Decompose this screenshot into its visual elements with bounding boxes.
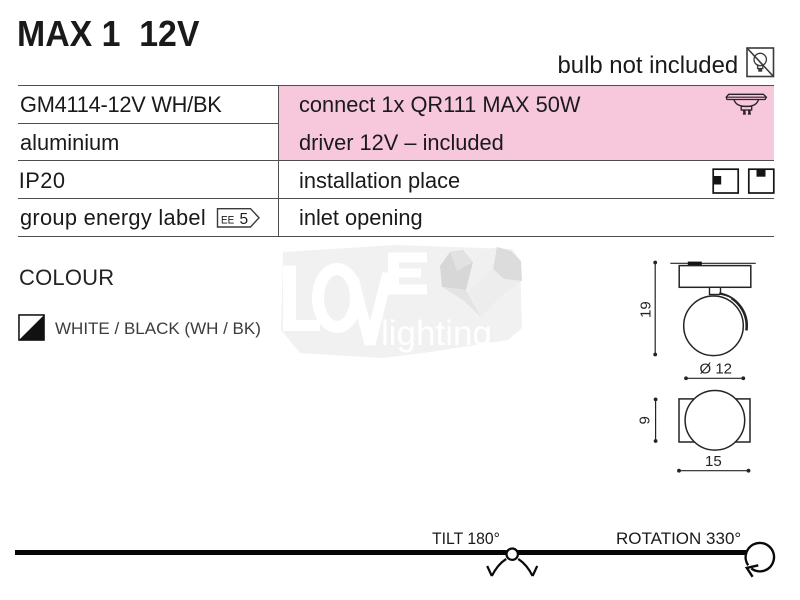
svg-text:19: 19 bbox=[638, 301, 655, 318]
svg-text:5: 5 bbox=[240, 211, 249, 228]
svg-text:15: 15 bbox=[705, 453, 722, 470]
svg-text:EE: EE bbox=[221, 215, 234, 227]
svg-text:Ø 12: Ø 12 bbox=[700, 361, 733, 378]
svg-text:9: 9 bbox=[637, 416, 654, 424]
